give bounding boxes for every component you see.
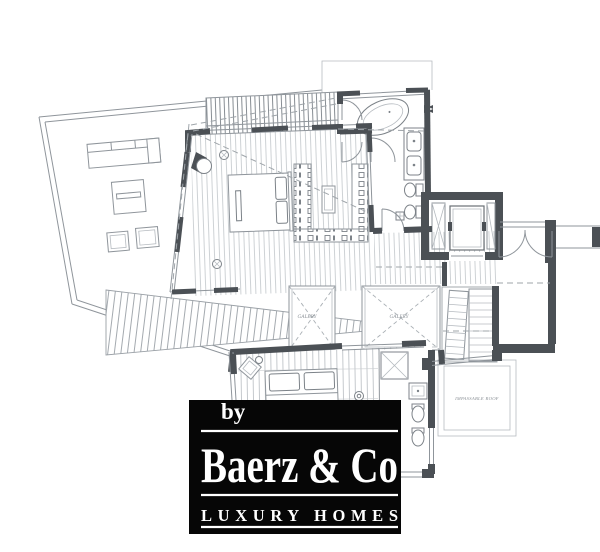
wall-segment <box>592 227 600 247</box>
terrace-furniture <box>87 138 168 253</box>
floor-plan-image: GALERY GALERY <box>0 0 600 552</box>
floor-plan-svg: GALERY GALERY <box>0 0 600 552</box>
bidet-symbol <box>405 205 424 219</box>
washbasin-symbol <box>409 383 427 399</box>
toilet-symbol <box>405 183 424 197</box>
ceiling-light-symbol <box>220 151 229 160</box>
impassable-roof-label: IMPASSABLE ROOF <box>454 396 499 401</box>
stool-symbol <box>107 231 130 252</box>
wall-segment <box>493 344 555 353</box>
ceiling-light-symbol <box>213 260 222 269</box>
staircase <box>442 287 497 362</box>
sconce-symbol <box>197 159 212 174</box>
terrace-left-edge <box>39 117 77 304</box>
gallery-left: GALERY <box>289 286 335 350</box>
bed-symbol <box>228 172 293 233</box>
wall-segment <box>442 262 447 286</box>
lamp-symbol <box>256 357 263 364</box>
wall-segment <box>492 286 499 346</box>
toilet-symbol <box>412 404 424 422</box>
vanity-sinks-symbol <box>404 128 424 180</box>
outdoor-table-symbol <box>111 180 146 215</box>
gallery-left-label: GALERY <box>298 314 318 320</box>
impassable-roof: IMPASSABLE ROOF <box>422 350 516 436</box>
bidet-symbol <box>412 428 424 446</box>
watermark-brand: Baerz & Co <box>201 437 398 493</box>
brand-watermark: by Baerz & Co LUXURY HOMES <box>189 399 401 534</box>
outdoor-sofa-symbol <box>87 138 161 168</box>
elevator-car-symbol <box>448 206 486 250</box>
window-gap <box>427 428 436 464</box>
wall-segment <box>422 358 432 370</box>
master-bedroom <box>191 128 372 296</box>
stool-symbol <box>136 227 160 249</box>
ceiling-fixture-symbol <box>355 392 364 401</box>
shower-symbol <box>381 352 408 379</box>
wall-segment <box>548 263 556 344</box>
wall-segment <box>422 469 434 478</box>
door-arc <box>499 230 552 257</box>
gallery-right: GALERY <box>362 286 440 350</box>
gallery-right-label: GALERY <box>390 314 410 320</box>
watermark-byline: by <box>221 399 246 424</box>
